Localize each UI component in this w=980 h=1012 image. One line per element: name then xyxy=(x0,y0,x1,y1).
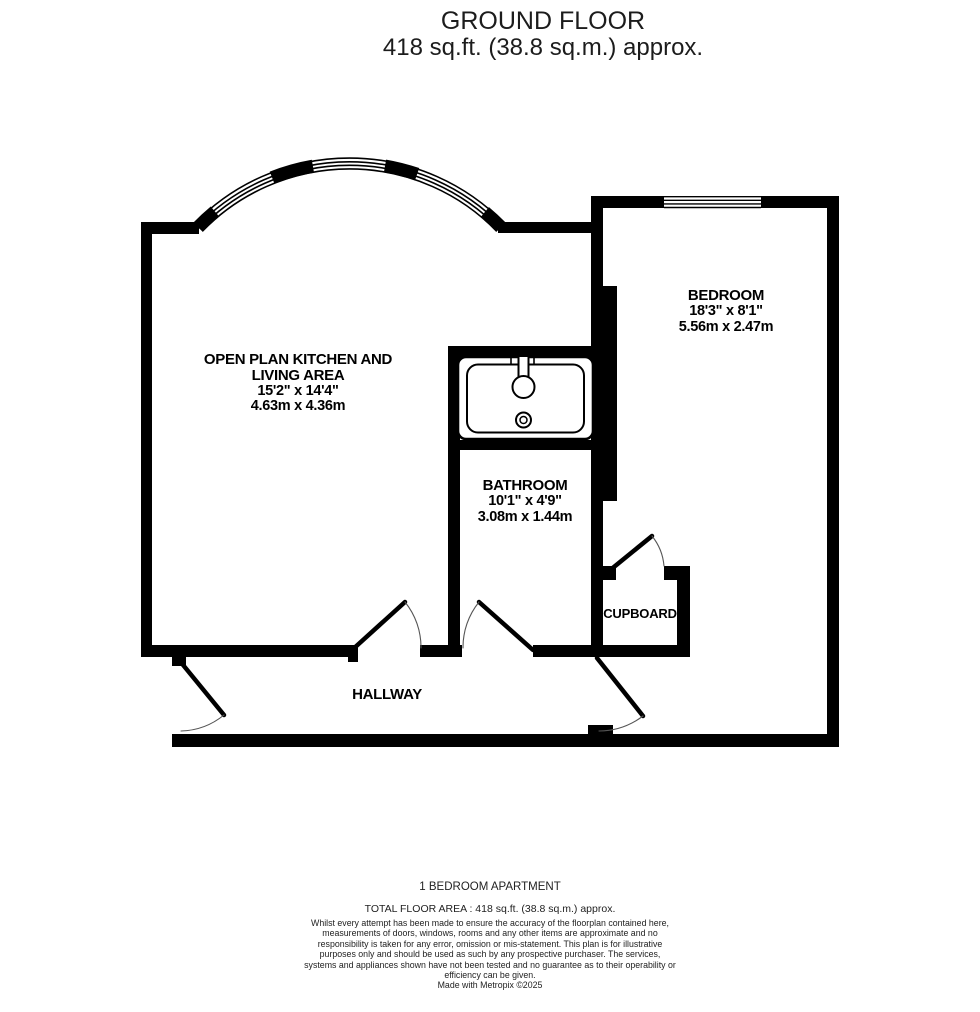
bathroom-door xyxy=(463,602,533,650)
bathroom-dim-metric: 3.08m x 1.44m xyxy=(478,510,572,526)
page-subtitle: 418 sq.ft. (38.8 sq.m.) approx. xyxy=(383,35,703,61)
bedroom-dim-metric: 5.56m x 2.47m xyxy=(679,320,773,336)
wall-living-left xyxy=(141,222,152,657)
wall-top-mid xyxy=(498,222,593,233)
living-room-door xyxy=(352,602,421,650)
bedroom-door xyxy=(597,658,643,731)
room-label-living: OPEN PLAN KITCHEN AND LIVING AREA 15'2" … xyxy=(204,352,392,415)
room-label-bathroom: BATHROOM 10'1" x 4'9" 3.08m x 1.44m xyxy=(478,478,572,525)
wall-cupboard-bottom xyxy=(591,645,690,657)
entrance-door xyxy=(179,660,224,731)
bay-window-mullions xyxy=(198,166,501,227)
room-label-cupboard: CUPBOARD xyxy=(603,606,677,621)
living-dim-imperial: 15'2" x 14'4" xyxy=(204,384,392,400)
walls xyxy=(141,196,839,747)
wall-bedroom-top-left xyxy=(591,196,665,208)
bath-tap-icon xyxy=(513,376,535,398)
total-floor-area-text: TOTAL FLOOR AREA : 418 sq.ft. (38.8 sq.m… xyxy=(0,903,980,915)
bathroom-dim-imperial: 10'1" x 4'9" xyxy=(478,494,572,510)
property-type-text: 1 BEDROOM APARTMENT xyxy=(0,881,980,894)
bathtub-icon xyxy=(458,356,593,439)
bay-window xyxy=(194,158,504,231)
footer: 1 BEDROOM APARTMENT TOTAL FLOOR AREA : 4… xyxy=(0,881,980,991)
wall-right xyxy=(827,196,839,747)
disclaimer-text: Whilst every attempt has been made to en… xyxy=(304,918,676,980)
credit-text: Made with Metropix ©2025 xyxy=(0,980,980,990)
plan-title-block: GROUND FLOOR 418 sq.ft. (38.8 sq.m.) app… xyxy=(383,8,703,61)
cupboard-door xyxy=(609,536,664,571)
bedroom-dim-imperial: 18'3" x 8'1" xyxy=(679,304,773,320)
wall-cupboard-right xyxy=(677,566,690,657)
wall-bedroom-pier xyxy=(603,286,617,501)
wall-bottom xyxy=(172,734,839,747)
wall-living-top-stub xyxy=(141,222,199,234)
wall-bath-surround xyxy=(460,440,600,450)
bedroom-window xyxy=(664,196,761,208)
room-label-bedroom: BEDROOM 18'3" x 8'1" 5.56m x 2.47m xyxy=(679,288,773,335)
wall-bedroom-door-jamb xyxy=(588,725,613,734)
room-label-hallway: HALLWAY xyxy=(352,687,422,703)
living-dim-metric: 4.63m x 4.36m xyxy=(204,399,392,415)
page-title: GROUND FLOOR xyxy=(383,8,703,35)
